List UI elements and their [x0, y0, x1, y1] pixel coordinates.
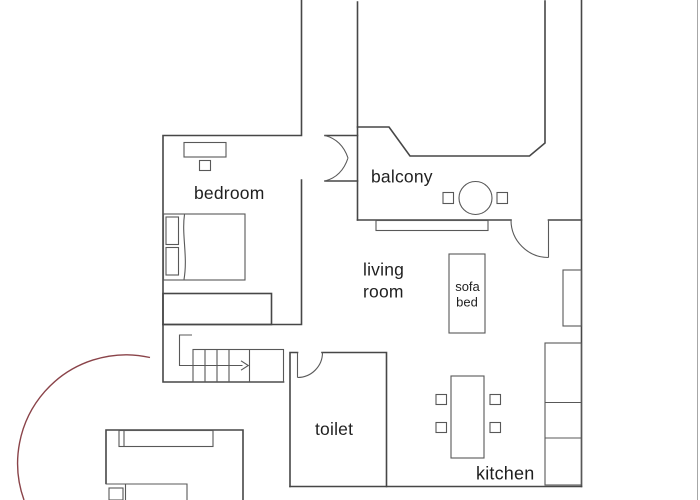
floor-plan: bedroom balcony living room sofa bed toi… [0, 0, 700, 500]
sofa-bed-label-line1: sofa [455, 279, 480, 294]
kitchen-label: kitchen [476, 464, 534, 484]
kitchen-counter-icon [545, 343, 582, 485]
entry-door-swing-icon [18, 355, 150, 500]
living-room-label-line2: room [363, 282, 404, 302]
dining-table-icon [451, 376, 484, 458]
dining-chair-icon [490, 395, 501, 405]
kitchen-counter-dividers [545, 403, 582, 439]
balcony-south-door-icon [511, 220, 549, 258]
dining-chair-icon [436, 395, 447, 405]
bedroom-furniture [164, 143, 246, 281]
dining-chair-icon [436, 423, 447, 433]
balcony-railing [358, 1, 546, 156]
closet-icon [119, 431, 213, 447]
stairs [180, 335, 284, 382]
floor-plan-drawing: bedroom balcony living room sofa bed toi… [0, 0, 700, 500]
doors [18, 136, 549, 500]
balcony-door-stubs [325, 136, 358, 182]
living-room-label-line1: living [363, 260, 404, 280]
walls-lower-left-room [106, 430, 243, 500]
stair-direction-arrow-icon [180, 335, 249, 370]
bedroom-label: bedroom [194, 183, 264, 203]
bed-pillow-icon [109, 488, 123, 500]
bed-blanket-fold [184, 215, 186, 280]
balcony-furniture [443, 182, 508, 215]
sofa-bed-label-line2: bed [456, 295, 478, 310]
dining-chair-icon [490, 423, 501, 433]
balcony-round-table-icon [459, 182, 492, 215]
wardrobe [163, 294, 272, 325]
balcony-label: balcony [371, 167, 433, 187]
desk-chair-icon [200, 161, 211, 171]
lower-left-room [106, 430, 243, 500]
balcony-double-door-icon [325, 136, 348, 182]
balcony-stool-icon [497, 193, 508, 204]
bed-pillow-icon [166, 248, 179, 276]
desk-icon [184, 143, 226, 158]
radiator-icon [563, 270, 582, 326]
balcony-stool-icon [443, 193, 454, 204]
bed-pillow-icon [166, 217, 179, 245]
toilet-door-icon [298, 353, 323, 378]
single-bed-icon [106, 484, 187, 500]
window-icon [376, 221, 488, 231]
toilet-label: toilet [315, 419, 353, 439]
